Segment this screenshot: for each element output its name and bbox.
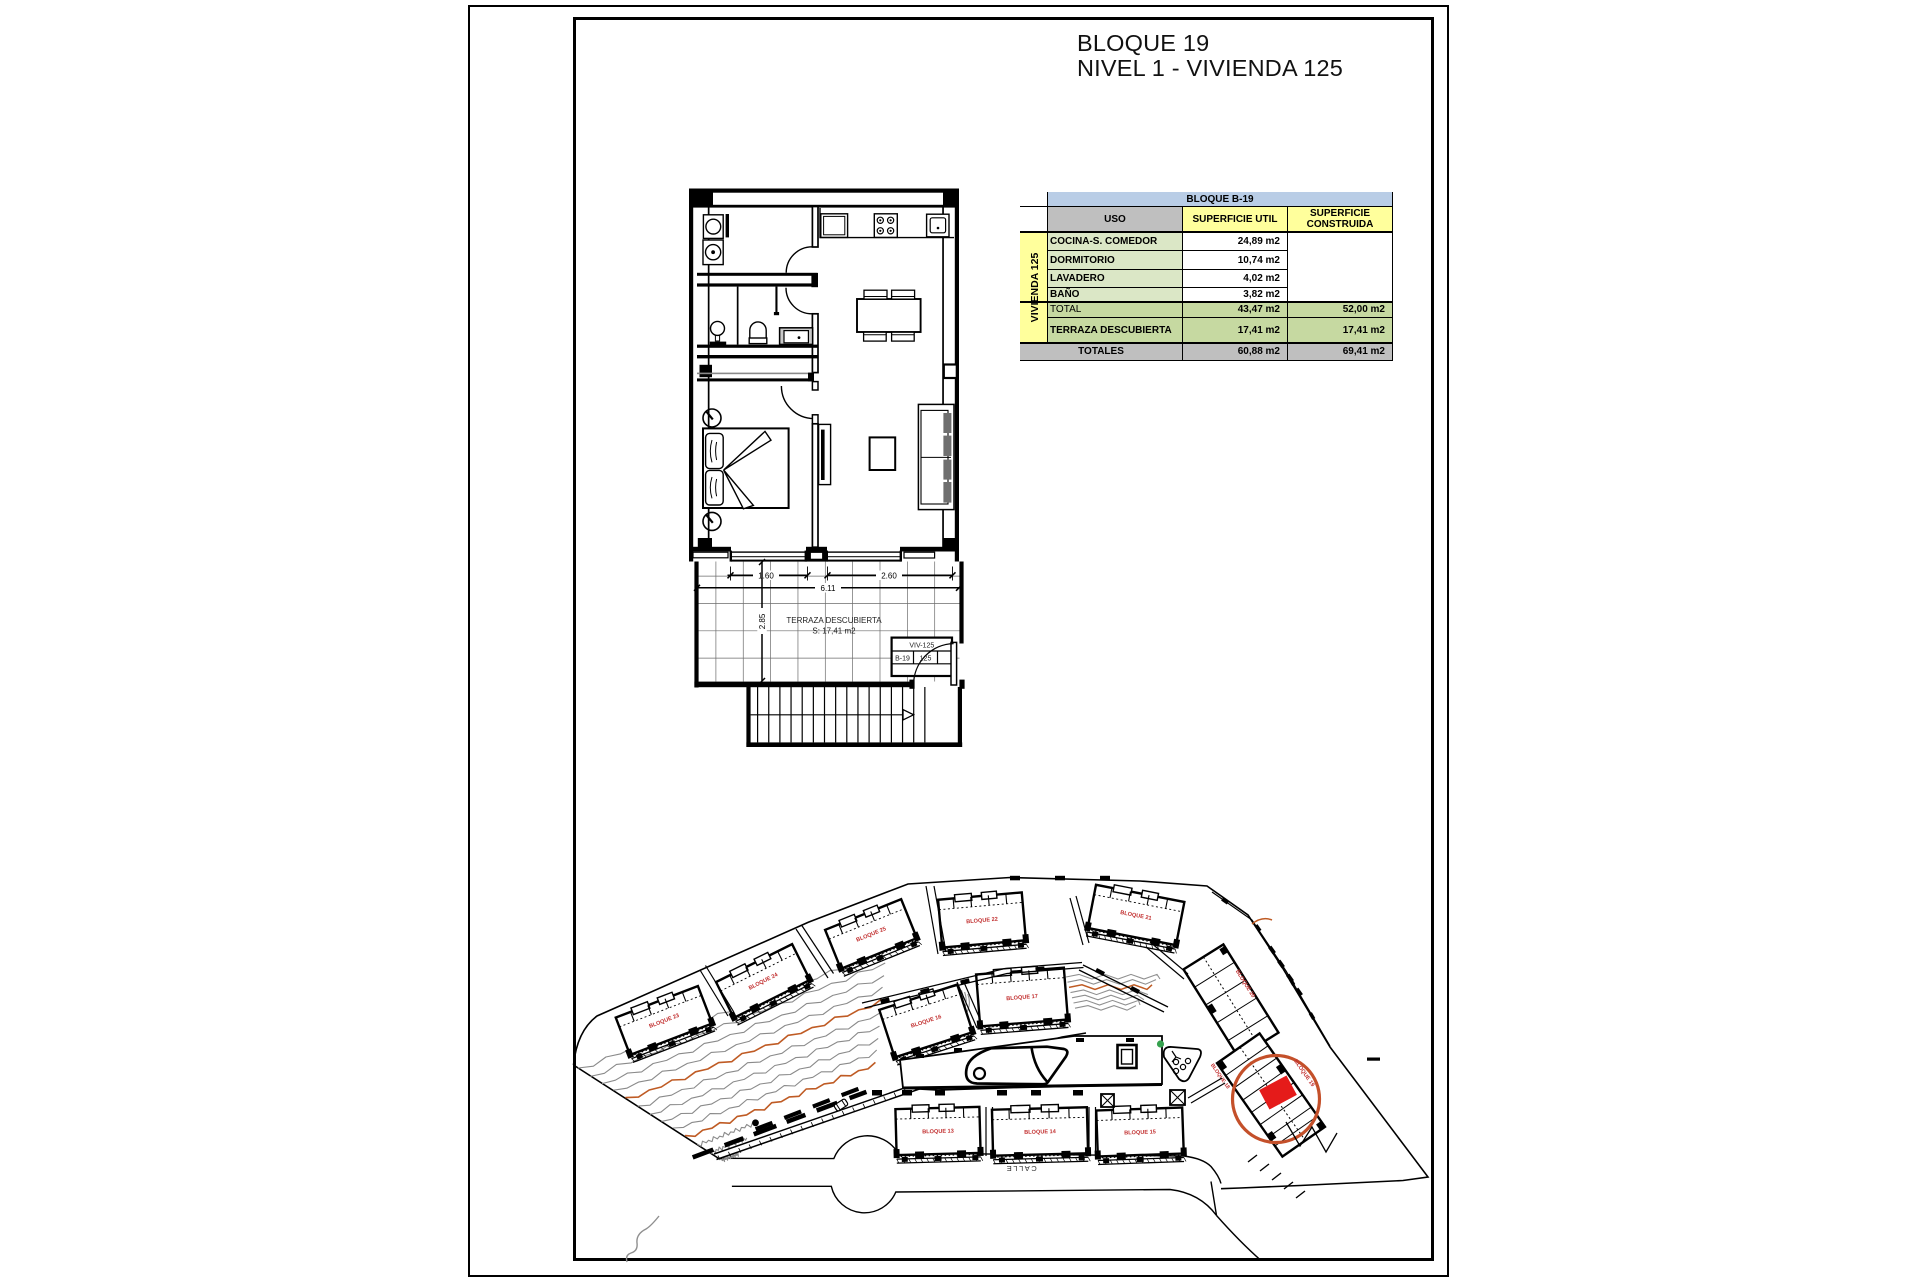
svg-text:CALLE: CALLE bbox=[1005, 1164, 1037, 1173]
svg-text:6.11: 6.11 bbox=[821, 584, 837, 593]
svg-text:S: 17,41 m2: S: 17,41 m2 bbox=[812, 627, 856, 636]
svg-text:VIV-125: VIV-125 bbox=[909, 643, 934, 650]
svg-text:2.85: 2.85 bbox=[758, 613, 767, 629]
svg-text:TERRAZA DESCUBIERTA: TERRAZA DESCUBIERTA bbox=[786, 616, 882, 625]
svg-text:BLOQUE 13: BLOQUE 13 bbox=[922, 1129, 954, 1136]
svg-text:BLOQUE 14: BLOQUE 14 bbox=[1024, 1129, 1057, 1136]
svg-text:VIVIENDA 125: VIVIENDA 125 bbox=[1029, 253, 1041, 323]
svg-text:2.60: 2.60 bbox=[881, 572, 897, 581]
svg-text:BLOQUE 15: BLOQUE 15 bbox=[1124, 1129, 1156, 1136]
svg-text:1.60: 1.60 bbox=[758, 572, 774, 581]
svg-text:B-19: B-19 bbox=[895, 655, 910, 662]
